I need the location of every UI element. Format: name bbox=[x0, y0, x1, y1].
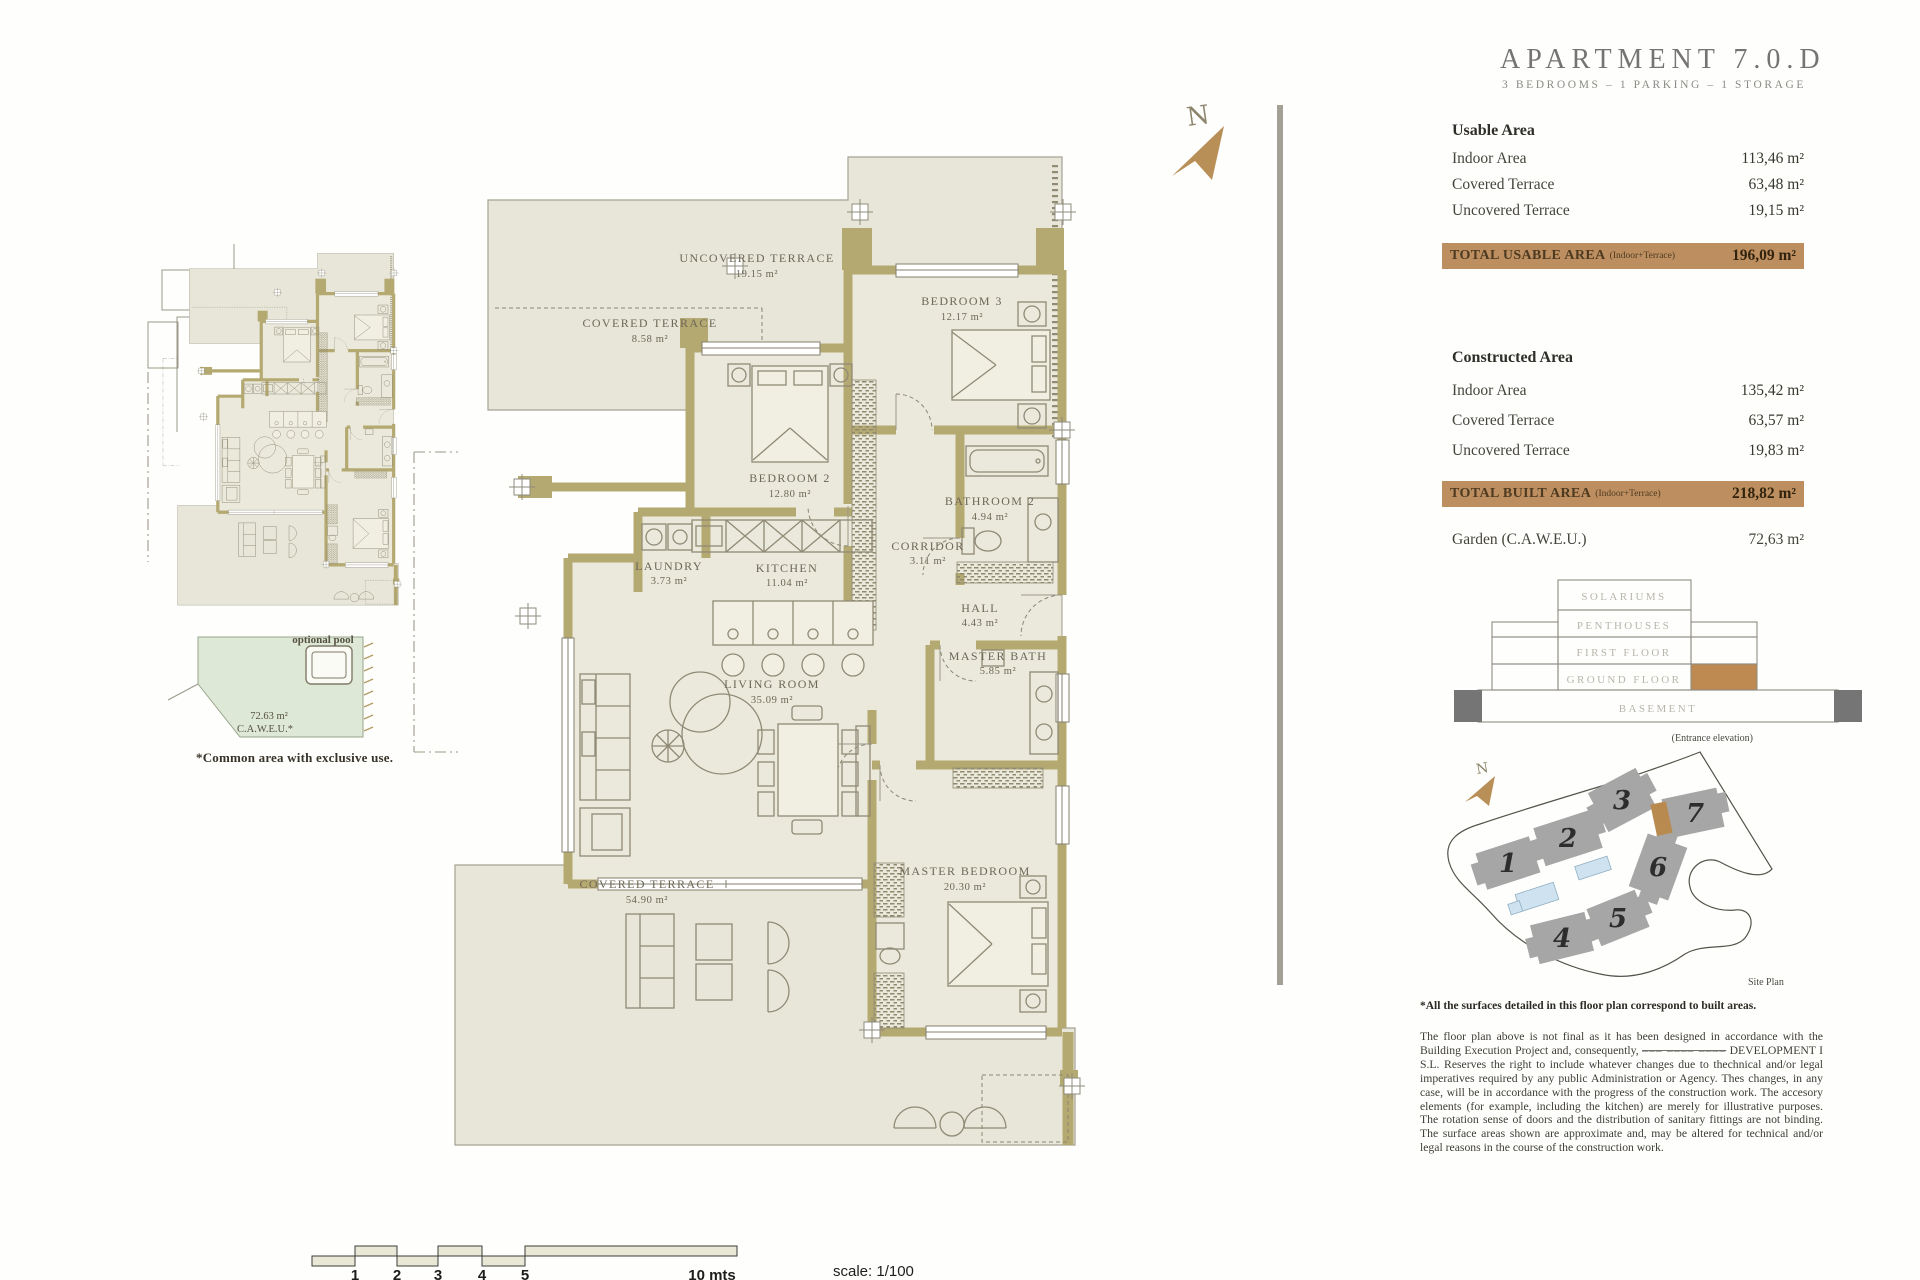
table-row: Indoor Area 113,46 m² bbox=[1452, 150, 1804, 176]
svg-text:4.94 m²: 4.94 m² bbox=[972, 512, 1009, 523]
mini-boundary-line bbox=[168, 684, 198, 700]
room-label-laundry: LAUNDRY bbox=[635, 559, 703, 573]
surfaces-footnote: *All the surfaces detailed in this floor… bbox=[1420, 1000, 1756, 1012]
scale-tick: 1 bbox=[351, 1267, 359, 1280]
site-pool bbox=[1575, 856, 1612, 880]
garden-row: Garden (C.A.W.E.U.) 72,63 m² bbox=[1452, 531, 1804, 549]
svg-text:2: 2 bbox=[1558, 824, 1577, 854]
basement-pillar bbox=[1834, 690, 1862, 722]
svg-text:7: 7 bbox=[1686, 799, 1704, 829]
room-label-uncovered-terrace: UNCOVERED TERRACE bbox=[679, 251, 834, 265]
room-label-bathroom-2: BATHROOM 2 bbox=[945, 494, 1035, 508]
svg-text:3.73 m²: 3.73 m² bbox=[651, 576, 688, 587]
total-usable-bar: TOTAL USABLE AREA (Indoor+Terrace) 196,0… bbox=[1442, 243, 1804, 269]
redacted-developer-name: ––– –––– –––– bbox=[1642, 1044, 1726, 1057]
site-plan: N 1 2 3 4 5 6 7 bbox=[1385, 742, 1875, 1012]
svg-text:4.43 m²: 4.43 m² bbox=[962, 618, 999, 629]
svg-text:8.58 m²: 8.58 m² bbox=[632, 334, 669, 345]
wardrobe-hatch bbox=[953, 768, 1043, 788]
room-label-living-room: LIVING ROOM bbox=[724, 677, 820, 691]
constructed-area-heading: Constructed Area bbox=[1452, 349, 1573, 367]
floor-label-penthouses: PENTHOUSES bbox=[1577, 620, 1671, 632]
room-label-master-bath: MASTER BATH bbox=[949, 649, 1047, 663]
svg-text:3.11 m²: 3.11 m² bbox=[910, 556, 946, 567]
basement-pillar bbox=[1454, 690, 1482, 722]
site-plan-label: Site Plan bbox=[1748, 977, 1784, 988]
svg-text:12.17 m²: 12.17 m² bbox=[941, 312, 983, 323]
garden-area-value: 72.63 m² bbox=[250, 711, 288, 722]
svg-text:11.04 m²: 11.04 m² bbox=[766, 578, 808, 589]
room-label-bedroom-2: BEDROOM 2 bbox=[749, 471, 831, 485]
svg-text:4: 4 bbox=[1553, 924, 1571, 954]
table-row: Covered Terrace 63,48 m² bbox=[1452, 176, 1804, 202]
table-row: Uncovered Terrace 19,83 m² bbox=[1452, 442, 1804, 472]
room-label-kitchen: KITCHEN bbox=[756, 561, 818, 575]
legal-disclaimer: The floor plan above is not final as it … bbox=[1420, 1030, 1823, 1155]
svg-text:5.85 m²: 5.85 m² bbox=[980, 666, 1017, 677]
site-pool bbox=[1506, 882, 1559, 915]
table-row: Indoor Area 135,42 m² bbox=[1452, 382, 1804, 412]
mini-plan-caption: *Common area with exclusive use. bbox=[196, 750, 393, 766]
north-pointer bbox=[1172, 126, 1224, 180]
optional-pool-label: optional pool bbox=[292, 634, 353, 646]
constructed-area-table: Indoor Area 135,42 m² Covered Terrace 63… bbox=[1452, 382, 1804, 472]
svg-text:5: 5 bbox=[1609, 904, 1627, 934]
apartment-subtitle: 3 BEDROOMS – 1 PARKING – 1 STORAGE bbox=[1502, 79, 1806, 91]
room-label-corridor: CORRIDOR bbox=[891, 539, 964, 553]
north-letter: N bbox=[1475, 760, 1490, 778]
svg-text:35.09 m²: 35.09 m² bbox=[751, 695, 793, 706]
scale-tick: 4 bbox=[478, 1267, 487, 1280]
floor-label-basement: BASEMENT bbox=[1619, 703, 1697, 715]
entrance-elevation-diagram: SOLARIUMS PENTHOUSES FIRST FLOOR GROUND … bbox=[1440, 570, 1880, 755]
scale-tick: 3 bbox=[434, 1267, 442, 1280]
garden-area-note: C.A.W.E.U.* bbox=[237, 724, 293, 735]
mini-plan-geometry bbox=[163, 253, 402, 605]
floor-plan-page: optional pool 72.63 m² C.A.W.E.U.* *Comm… bbox=[0, 0, 1920, 1280]
scale-end-label: 10 mts bbox=[688, 1267, 736, 1280]
svg-text:6: 6 bbox=[1649, 853, 1667, 883]
usable-area-table: Indoor Area 113,46 m² Covered Terrace 63… bbox=[1452, 150, 1804, 228]
north-arrow-icon: N bbox=[1168, 92, 1232, 188]
total-built-bar: TOTAL BUILT AREA (Indoor+Terrace) 218,82… bbox=[1442, 481, 1804, 507]
room-label-master-bedroom: MASTER BEDROOM bbox=[899, 864, 1030, 878]
wardrobe-hatch bbox=[957, 562, 1053, 583]
table-row: Covered Terrace 63,57 m² bbox=[1452, 412, 1804, 442]
room-label-covered-terrace: COVERED TERRACE bbox=[582, 316, 717, 330]
floor-label-ground-floor: GROUND FLOOR bbox=[1567, 674, 1682, 686]
site-north-arrow-icon: N bbox=[1465, 760, 1495, 806]
wardrobe-hatch bbox=[852, 380, 876, 630]
vertical-divider bbox=[1277, 105, 1283, 985]
site-building-7: 7 bbox=[1650, 786, 1733, 841]
svg-text:12.80 m²: 12.80 m² bbox=[769, 489, 811, 500]
apartment-location-highlight bbox=[1691, 664, 1757, 690]
scale-tick: 5 bbox=[521, 1267, 529, 1280]
room-label-bedroom-3: BEDROOM 3 bbox=[921, 294, 1003, 308]
room-label-hall: HALL bbox=[961, 601, 999, 615]
mini-plan: optional pool 72.63 m² C.A.W.E.U.* bbox=[128, 222, 418, 782]
floor-label-first-floor: FIRST FLOOR bbox=[1577, 647, 1672, 659]
wardrobe-hatch bbox=[874, 973, 904, 1028]
mini-garden-hatch bbox=[364, 643, 373, 731]
svg-text:20.30 m²: 20.30 m² bbox=[944, 882, 986, 893]
apartment-title: APARTMENT 7.0.D bbox=[1500, 44, 1826, 76]
table-row: Uncovered Terrace 19,15 m² bbox=[1452, 202, 1804, 228]
north-letter: N bbox=[1185, 100, 1212, 133]
svg-text:1: 1 bbox=[1499, 849, 1517, 879]
usable-area-heading: Usable Area bbox=[1452, 122, 1535, 140]
property-dash bbox=[414, 452, 458, 752]
svg-text:3: 3 bbox=[1613, 786, 1631, 816]
scale-ratio-label: scale: 1/100 bbox=[833, 1263, 914, 1280]
floor-label-solariums: SOLARIUMS bbox=[1581, 591, 1666, 603]
room-label-covered-terrace-bottom: COVERED TERRACE bbox=[579, 877, 714, 891]
main-floor-plan: UNCOVERED TERRACE 19.15 m² COVERED TERRA… bbox=[400, 80, 1100, 1200]
svg-text:54.90 m²: 54.90 m² bbox=[626, 895, 668, 906]
scale-tick: 2 bbox=[393, 1267, 401, 1280]
svg-text:19.15 m²: 19.15 m² bbox=[736, 269, 778, 280]
